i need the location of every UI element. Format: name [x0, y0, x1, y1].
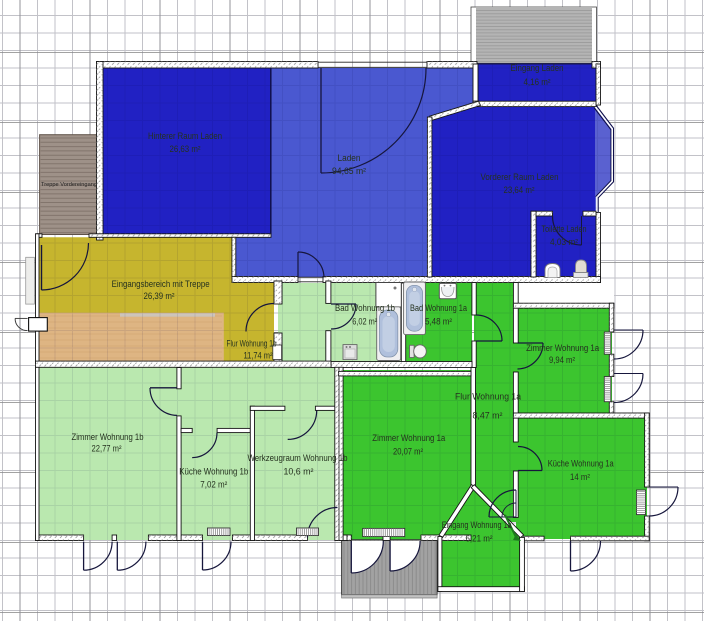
svg-text:4,03 m²: 4,03 m²	[550, 237, 578, 247]
svg-text:Zimmer Wohnung 1a: Zimmer Wohnung 1a	[526, 343, 599, 353]
svg-text:94,65 m²: 94,65 m²	[332, 166, 366, 176]
svg-text:4,16 m²: 4,16 m²	[524, 77, 551, 87]
svg-text:23,64 m²: 23,64 m²	[504, 185, 535, 195]
svg-text:5,48 m²: 5,48 m²	[425, 317, 452, 327]
svg-text:6,21 m²: 6,21 m²	[466, 534, 493, 544]
svg-text:6,02 m²: 6,02 m²	[352, 317, 377, 327]
svg-text:20,07 m²: 20,07 m²	[393, 447, 423, 457]
svg-text:Bad Wohnung 1a: Bad Wohnung 1a	[410, 303, 467, 313]
svg-text:26,39 m²: 26,39 m²	[144, 291, 175, 301]
svg-text:Zimmer Wohnung 1b: Zimmer Wohnung 1b	[72, 432, 144, 442]
svg-text:Bad Wohnung 1b: Bad Wohnung 1b	[335, 303, 395, 313]
svg-text:14 m²: 14 m²	[570, 472, 590, 482]
svg-text:10,6 m²: 10,6 m²	[284, 467, 314, 477]
svg-text:8,47 m²: 8,47 m²	[473, 411, 503, 421]
svg-text:Eingang Wohnung 1a: Eingang Wohnung 1a	[442, 520, 512, 530]
svg-text:Eingangsbereich mit Treppe: Eingangsbereich mit Treppe	[112, 279, 210, 289]
svg-text:Zimmer Wohnung 1a: Zimmer Wohnung 1a	[372, 433, 445, 443]
svg-text:Werkzeugraum Wohnung 1b: Werkzeugraum Wohnung 1b	[248, 453, 348, 463]
svg-text:Vorderer Raum Laden: Vorderer Raum Laden	[481, 172, 559, 182]
svg-text:26,63 m²: 26,63 m²	[170, 144, 201, 154]
svg-text:Laden: Laden	[338, 153, 361, 163]
svg-text:Flur Wohnung 1a: Flur Wohnung 1a	[455, 392, 521, 402]
svg-text:Küche Wohnung 1b: Küche Wohnung 1b	[179, 467, 248, 477]
svg-text:9,94 m²: 9,94 m²	[549, 355, 575, 365]
svg-text:Toilette Laden: Toilette Laden	[542, 224, 587, 234]
svg-text:22,77 m²: 22,77 m²	[92, 444, 122, 454]
svg-text:Hinterer Raum Laden: Hinterer Raum Laden	[148, 131, 222, 141]
svg-text:Eingang Laden: Eingang Laden	[511, 63, 564, 73]
svg-text:Flur Wohnung 1b: Flur Wohnung 1b	[227, 339, 277, 349]
svg-text:7,02 m²: 7,02 m²	[200, 480, 227, 490]
svg-text:11,74 m²: 11,74 m²	[244, 351, 273, 361]
svg-text:Küche Wohnung 1a: Küche Wohnung 1a	[548, 459, 614, 469]
svg-text:Treppe Vordereingang: Treppe Vordereingang	[41, 182, 97, 188]
